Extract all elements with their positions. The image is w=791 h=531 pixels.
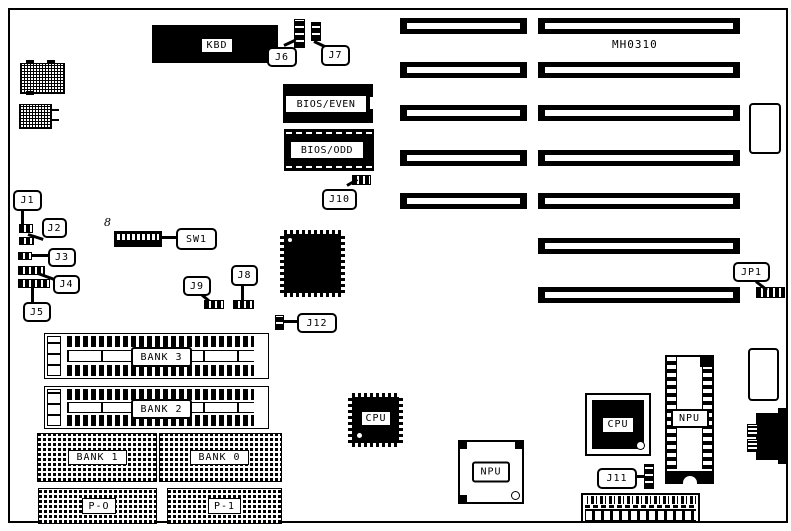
p1-label: P-1 [208, 498, 241, 514]
bank0-label: BANK 0 [190, 450, 249, 465]
capacitor-lead-icon [50, 119, 59, 121]
board-model: MH0310 [612, 38, 658, 51]
fuse-tab-icon [47, 60, 55, 64]
sw1-callout-tail [160, 236, 176, 239]
dip-corner-icon [700, 357, 712, 367]
dip-row-icon [585, 505, 696, 508]
j12-callout: J12 [297, 313, 337, 333]
socket-corner-icon [515, 442, 522, 449]
j1-callout: J1 [13, 190, 42, 211]
j7-callout: J7 [321, 45, 350, 66]
crystal-oscillator [748, 348, 779, 401]
socket-corner-icon [460, 495, 467, 502]
npu-socket-label: NPU [472, 462, 510, 483]
expansion-slot [400, 18, 527, 34]
simm-comb-icon [67, 336, 254, 347]
sw1-dip-switch [114, 231, 162, 247]
expansion-slot [538, 238, 740, 254]
j2-jumper [19, 237, 34, 245]
slot-stripe-icon [407, 23, 520, 29]
dip-row-icon [585, 496, 696, 504]
j3-callout-tail [32, 254, 48, 257]
expansion-slot [400, 150, 527, 166]
slot-stripe-icon [545, 243, 733, 249]
bios-odd-dash-icon [286, 132, 372, 134]
pin1-dot-icon [288, 238, 292, 242]
j2-callout: J2 [42, 218, 67, 238]
motherboard-diagram: KBD J6 J7 BIOS/EVEN BIOS/ODD J10 MH0310 … [0, 0, 791, 531]
sw1-switches-icon [117, 234, 159, 240]
capacitor-lead-icon [50, 109, 59, 111]
expansion-slot [400, 193, 527, 209]
j5-callout-tail [31, 286, 34, 302]
expansion-slot [538, 150, 740, 166]
config-dip-block [581, 493, 700, 523]
kbd-connector: KBD [152, 25, 278, 63]
din-connector-body [756, 413, 782, 460]
expansion-slot [538, 18, 740, 34]
simm-end-icon [47, 336, 61, 376]
bios-even-chip: BIOS/EVEN [283, 84, 373, 123]
j11-jumper [644, 464, 654, 489]
simm-bank2: BANK 2 [44, 386, 269, 429]
j8-callout: J8 [231, 265, 258, 286]
slot-stripe-icon [407, 198, 520, 204]
j6-callout: J6 [267, 47, 297, 67]
j9-callout: J9 [183, 276, 211, 296]
expansion-slot [538, 62, 740, 78]
dip-bank0: BANK 0 [159, 433, 282, 482]
pin1-circle-icon [636, 441, 645, 450]
sw1-callout: SW1 [176, 228, 217, 250]
sw1-position-count: 8 [104, 216, 111, 229]
j1-jumper [19, 224, 33, 233]
j3-jumper [18, 252, 32, 260]
chipset-qfp [280, 230, 345, 297]
j10-callout: J10 [322, 189, 357, 210]
j11-callout: J11 [597, 468, 637, 489]
slot-stripe-icon [407, 67, 520, 73]
bank1-label: BANK 1 [68, 450, 127, 465]
slot-stripe-icon [545, 292, 733, 298]
parity-bank-p0: P-O [38, 488, 157, 524]
fuse-tab-icon [26, 60, 34, 64]
bank2-label: BANK 2 [131, 399, 192, 419]
j12-callout-tail [283, 320, 297, 323]
socket-corner-icon [460, 442, 467, 449]
npu-dip-label: NPU [671, 409, 709, 428]
slot-stripe-icon [545, 198, 733, 204]
slot-stripe-icon [545, 155, 733, 161]
j4-callout: J4 [53, 275, 80, 294]
kbd-label: KBD [202, 39, 232, 52]
dip-notch-icon [665, 471, 714, 484]
pin1-circle-icon [511, 491, 520, 500]
j8-jumper [233, 300, 254, 309]
cpu-plcc-socket: CPU [585, 393, 651, 456]
npu-dip-socket: NPU [665, 355, 714, 484]
slot-stripe-icon [545, 110, 733, 116]
bios-even-notch-icon [370, 97, 375, 109]
expansion-slot [538, 105, 740, 121]
p0-label: P-O [82, 498, 116, 514]
bank3-label: BANK 3 [131, 347, 192, 367]
din-pin-icon [747, 439, 758, 452]
bios-odd-dash-icon [286, 166, 372, 168]
bios-even-label: BIOS/EVEN [286, 96, 366, 112]
simm-bank3: BANK 3 [44, 333, 269, 379]
j6-pin-header [294, 19, 305, 48]
dip-bank1: BANK 1 [37, 433, 157, 482]
cpu-qfp-chip: CPU [348, 393, 403, 447]
j7-pin-header [311, 22, 321, 41]
fuse-component [20, 63, 65, 94]
slot-stripe-icon [407, 110, 520, 116]
fuse-tab-icon [26, 91, 34, 95]
npu-plcc-socket: NPU [458, 440, 524, 504]
crystal-oscillator [749, 103, 781, 154]
capacitor-component [19, 104, 52, 129]
cpu-socket-label: CPU [603, 418, 633, 432]
slot-stripe-icon [545, 67, 733, 73]
slot-stripe-icon [545, 23, 733, 29]
j5-jumper [18, 279, 50, 288]
j3-callout: J3 [48, 248, 76, 267]
parity-bank-p1: P-1 [167, 488, 282, 524]
slot-stripe-icon [407, 155, 520, 161]
bios-odd-label: BIOS/ODD [291, 142, 363, 158]
expansion-slot [538, 193, 740, 209]
qfp-body [284, 234, 341, 293]
jp1-callout: JP1 [733, 262, 770, 282]
dip-row-icon [585, 509, 696, 521]
cpu-qfp-label: CPU [362, 412, 390, 425]
bios-odd-chip: BIOS/ODD [284, 129, 374, 171]
pin1-dot-icon [357, 433, 362, 438]
j5-callout: J5 [23, 302, 51, 322]
simm-end-icon [47, 389, 61, 426]
din-pin-icon [747, 424, 758, 437]
expansion-slot [538, 287, 740, 303]
expansion-slot [400, 62, 527, 78]
jp1-jumper [756, 287, 785, 298]
expansion-slot [400, 105, 527, 121]
